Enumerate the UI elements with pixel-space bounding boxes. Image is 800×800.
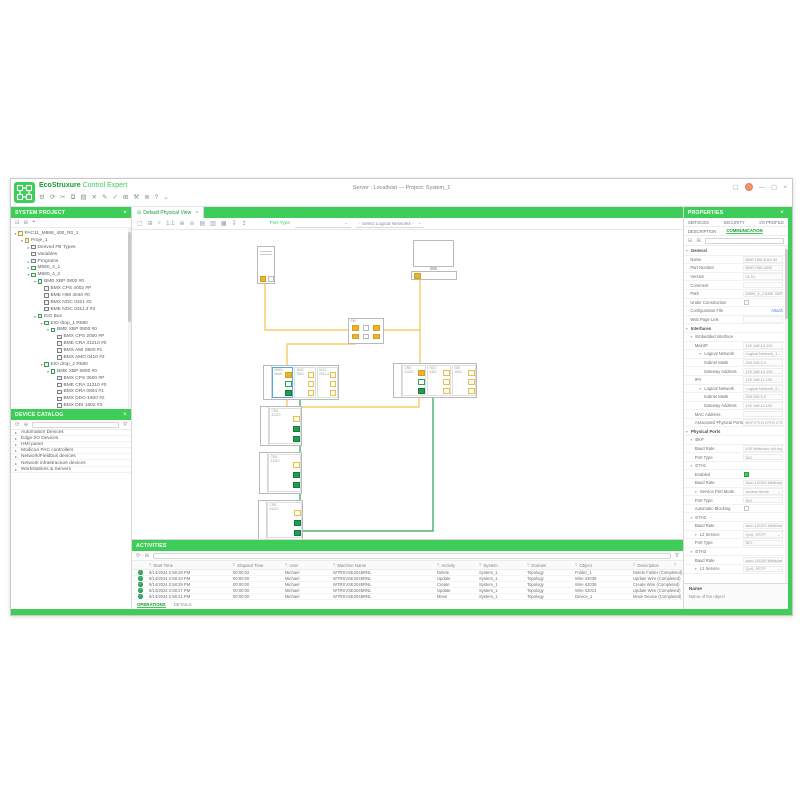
property-select[interactable]: Logical Network_1⌄ [743,351,783,358]
property-value[interactable]: 100 Mbits/sec full duplex [743,445,783,452]
property-label: Part Number [684,265,743,270]
checkbox-unchecked[interactable] [744,506,749,511]
drop-device[interactable]: CRA 31210 [260,406,302,446]
tower-device[interactable] [257,246,275,284]
property-value[interactable]: BME H58 4040 #0 [743,256,783,263]
property-value[interactable]: NIO [743,540,783,547]
port-yo[interactable] [293,462,300,468]
property-label: Path [684,291,743,296]
property-row: Version01.01 [684,273,788,282]
snapshot-icon[interactable]: ▥ [210,220,216,227]
port-yo[interactable] [308,381,315,387]
column-header-object[interactable]: ∇Object [572,563,630,568]
rack-module[interactable]: DDI 1602 [452,365,476,396]
port-yo[interactable] [468,370,475,376]
port-gw[interactable] [418,379,425,385]
device-label: SW [351,320,356,324]
export-wires-icon[interactable]: ↥ [242,220,247,227]
rack-module[interactable]: M580 MAIN [272,367,293,398]
property-label: ▾ETH1 [684,463,783,468]
port-g[interactable] [294,520,301,526]
column-header-start-time[interactable]: ∇Start Time [146,563,230,568]
properties-close-icon[interactable]: × [780,210,784,216]
deploy-icon[interactable]: ⊕ [144,193,149,202]
property-value[interactable]: SIO [743,497,783,504]
row-cell: 00:00:00 [230,582,282,587]
row-status-cell: ✓ [132,582,146,587]
property-value[interactable]: 255.255.0.0 [743,394,783,401]
property-value[interactable] [743,411,783,418]
props-search-input[interactable] [705,238,784,244]
property-value[interactable]: 192.168.10.100 [743,368,783,375]
wire[interactable] [298,393,433,531]
tree-item-label: BMX NOC 0321 #2 [51,300,92,305]
expand-all-icon[interactable]: ⊞ [24,220,29,226]
property-value[interactable]: SIO [743,454,783,461]
property-label: Name [684,257,743,262]
port-w[interactable] [268,276,275,282]
filter-funnel-icon[interactable]: ∇ [575,563,577,567]
tree-item[interactable]: BME CRA 31210 #0 [11,340,131,347]
properties-panel: PROPERTIES × SERVICESSECURITYI/O PROFILE… [684,207,788,609]
filter-funnel-icon[interactable]: ∇ [149,563,151,567]
cut-icon[interactable]: ✂ [60,193,65,202]
tree-item-label: BMX DDI 1602 #3 [64,403,103,408]
row-cell: 8/14/2024 2:58:21 PM [146,594,230,599]
property-value[interactable]: Auto 10/100 Mbits/sec [743,480,783,487]
filter-funnel-icon[interactable]: ∇ [285,563,287,567]
tree-item[interactable]: BME H58 4040 #0 [11,292,131,299]
port-g[interactable] [294,530,301,536]
property-value[interactable]: BME-H58-4040 [743,265,783,272]
tree-scrollbar[interactable] [128,228,131,409]
copy-icon[interactable]: ⧉ [71,193,76,202]
port-yo[interactable] [330,381,337,387]
tree-item-label: Derived FB Types [38,245,76,250]
chevron-down-icon: ⌄ [778,386,781,391]
import-wires-icon[interactable]: ↧ [232,220,237,227]
status-bar [11,609,792,615]
property-value[interactable]: 255.255.0.0 [743,359,783,366]
property-label: ▾Logical Network [684,386,743,391]
catalog-refresh-icon[interactable]: ⟳ [15,422,20,428]
activities-filter-icon[interactable]: ∇ [675,553,679,559]
maximize-icon[interactable]: ▢ [771,183,777,191]
export-icon[interactable]: ▤ [199,220,205,227]
tree-item[interactable]: ▾M580_4_2 [11,271,131,278]
props-expand-all-icon[interactable]: ⊞ [696,238,701,244]
paste-icon[interactable]: ▤ [80,193,86,202]
row-cell: System_1 [476,570,524,575]
tree-item[interactable]: BME CRA 31210 #0 [11,382,131,389]
row-cell: System_1 [476,582,524,587]
module-icon [57,397,62,402]
module-label: DDI 1602 [455,367,462,374]
property-row: Gateway Address192.168.10.100 [684,367,788,376]
row-cell: 00:00:02 [230,570,282,575]
minimize-icon[interactable]: — [759,184,766,191]
row-cell: Folder_1 [572,570,630,575]
catalog-item-label: Automation Devices [21,430,64,435]
filter-funnel-icon[interactable]: ∇ [479,563,481,567]
property-label: Port Type [684,498,743,503]
chevron-down-icon: ⌄ [344,220,348,226]
port-gw[interactable] [285,381,292,387]
tree-item[interactable]: BMX CPS 2000 #P [11,333,131,340]
row-cell: Michael [282,582,330,587]
tree-item[interactable]: BMX AMI 0800 #1 [11,347,131,354]
tree-item-label: BMX AMI 0800 #1 [64,348,103,353]
switch-device[interactable]: SW [348,318,384,344]
port-g[interactable] [293,482,300,488]
zoom-in-icon[interactable]: ⊕ [179,220,184,227]
activities-panel: ACTIVITIES ⟳ ⊞ ∇ ∇Start Time∇Elapsed Tim… [132,539,683,609]
port-g[interactable] [285,390,292,396]
column-header-machine-name[interactable]: ∇Machine Name [330,563,434,568]
port-yo[interactable] [468,388,475,394]
filter-funnel-icon[interactable]: ∇ [633,563,635,567]
properties-toolbar: ⊟ ⊞ [684,236,788,246]
row-cell: 00:00:00 [230,576,282,581]
rack-module[interactable]: NOC 0321 [427,365,451,396]
property-select[interactable]: Logical Network_2⌄ [743,385,783,392]
prop-tab-i-o-profile[interactable]: I/O PROFILE [759,220,784,225]
row-cell: Topology [524,588,572,593]
activities-rows: ✓8/14/2024 2:58:29 PM00:00:02MichaelWTRS… [132,570,683,600]
settings-icon[interactable]: ⚙ [39,193,45,202]
tree-item[interactable]: BMX DDO 1600 #2 [11,395,131,402]
tree-item[interactable]: BMX CPS 4002 #P [11,285,131,292]
catalog-search-input[interactable] [32,422,119,428]
tree-item-label: EIO Bus [44,314,62,319]
tree-item-label: BME H58 4040 #0 [51,293,90,298]
property-row: Baud Rate100 Mbits/sec full duplex [684,445,788,454]
property-value[interactable]: Auto 10/100 Mbits/sec [743,523,783,530]
tree-item[interactable]: ▾BME XBP 0800 #0 [11,278,131,285]
port-w[interactable] [363,334,370,340]
row-cell: Device_1 [572,594,630,599]
monitor-stand [430,267,437,270]
validate-icon[interactable]: ✓ [112,193,117,202]
property-label: ▾Logical Network [684,351,743,356]
catalog-item-label: Modicon PAC controllers [21,448,73,453]
property-value[interactable]: 01.01 [743,273,783,280]
tree-item-label: BME CRA 31210 #0 [64,341,107,346]
property-row: Port TypeSIO [684,496,788,505]
tree-item[interactable]: ▸Programs [11,258,131,265]
property-select[interactable]: QoS, RSTP⌄ [743,566,783,573]
station-icon [44,321,49,326]
port-yo[interactable] [468,379,475,385]
success-check-icon: ✓ [138,594,143,599]
property-select[interactable]: Access Mode⌄ [743,488,783,495]
prop-tab-services[interactable]: SERVICES [688,220,709,225]
drop-device[interactable]: CRA 31210 [258,500,303,539]
catalog-item[interactable]: ▸Workstations & Servers [11,467,131,473]
tree-item-label: Variables [38,252,58,257]
zoom-tool-icon[interactable]: ⌕ [158,220,161,227]
prop-tab-communication[interactable]: COMMUNICATION [726,228,762,234]
tree-item[interactable]: Variables [11,251,131,258]
module-label: CRA 31210 [270,504,279,511]
property-label: ▾L2 Service [684,532,743,537]
property-row: Part NumberBME-H58-4040 [684,264,788,273]
port-y[interactable] [373,325,380,331]
port-type-label: Port Type [270,221,290,226]
row-status-cell: ✓ [132,576,146,581]
drop-device[interactable]: CRA 31210 [259,452,302,494]
user-avatar[interactable] [745,183,753,191]
port-yo[interactable] [330,390,337,396]
row-cell: Michael [282,570,330,575]
row-status-cell: ✓ [132,588,146,593]
row-cell: Create [434,582,476,587]
properties-scrollbar[interactable] [785,246,788,583]
activities-search-input[interactable] [153,553,671,559]
port-yo[interactable] [308,372,315,378]
tree-item[interactable]: BMX CPS 3500 #P [11,375,131,382]
rack-device[interactable]: CRA 31210NOC 0321DDI 1602 [393,363,477,398]
property-row: Under Construction [684,299,788,308]
rack-device[interactable]: M580 MAINNOC 0321NOC 0311-4 [263,365,339,400]
topology-canvas[interactable]: SWM580 MAINNOC 0321NOC 0311-4CRA 31210NO… [132,230,683,539]
filter-funnel-icon[interactable]: ∇ [674,563,676,567]
port-y[interactable] [285,372,292,378]
prop-tab-security[interactable]: SECURITY [724,220,745,225]
tree-item-label: EIO drop_2 R580 [51,362,88,367]
column-header-user[interactable]: ∇User [282,563,330,568]
property-row: Subnet Mask255.255.0.0 [684,359,788,368]
tree-item[interactable]: BMX AMO 0410 #2 [11,354,131,361]
column-header-system[interactable]: ∇System [476,563,524,568]
column-header-domain[interactable]: ∇Domain [524,563,572,568]
locate-icon[interactable]: ⌖ [32,219,35,226]
tree-item[interactable]: ▾EIO drop_2 R580 [11,361,131,368]
rack-module[interactable]: CRA 31210 [269,408,301,444]
tree-item[interactable]: ▾BME XBP 0800 #0 [11,368,131,375]
tree-item[interactable]: BME NOC 0311.4 #3 [11,306,131,313]
layout-icon[interactable]: ▢ [732,183,738,191]
property-value[interactable]: M580_4_2.BME XBP 0800 [743,291,783,298]
close-icon[interactable]: × [783,184,787,191]
property-row: ▾L2 ServiceQoS, RSTP⌄ [684,565,788,574]
column-header-elapsed-time[interactable]: ∇Elapsed Time [230,563,282,568]
system-project-header: SYSTEM PROJECT × [11,207,131,218]
property-row: Subnet Mask255.255.0.0 [684,393,788,402]
checkbox-checked[interactable] [744,472,749,477]
row-cell: Topology [524,570,572,575]
module-label: NOC 0311-4 [319,369,329,376]
row-cell: Wire 42038 [572,582,630,587]
logical-network-select[interactable]: - Select Logical Networks -⌄ [356,220,424,228]
port-g[interactable] [418,388,425,394]
port-y[interactable] [418,370,425,376]
filter-funnel-icon[interactable]: ∇ [333,563,335,567]
module-icon [57,390,62,395]
property-row: Configuration FileAttach [684,307,788,316]
tab-default-physical-view[interactable]: ⊞ Default Physical View × [132,207,204,218]
tree-item-label: BME NOC 0311.4 #3 [51,307,96,312]
tree-item-label: PAC11_M868_400_R0_1 [25,231,79,236]
rack-module[interactable]: CRA 31210 [267,502,302,538]
chevron-down-icon: ⌄ [418,220,422,226]
tree-item-label: BME XBP 0800 #0 [57,327,97,332]
station-icon [31,266,36,271]
column-header-extra: ∇ [671,563,683,567]
port-yo[interactable] [308,390,315,396]
zoom-out-icon[interactable]: ⊖ [189,220,194,227]
tree-item[interactable]: ▾BME XBP 0800 #0 [11,326,131,333]
system-project-close-icon[interactable]: × [123,210,127,216]
catalog-item-label: Network infrastructure devices [21,461,86,466]
module-icon [44,293,49,298]
port-y[interactable] [414,273,421,279]
more-icon[interactable]: ⌄ [163,193,168,202]
column-header-activity[interactable]: ∇Activity [434,563,476,568]
port-g[interactable] [293,436,300,442]
property-row: NameBME H58 4040 #0 [684,256,788,265]
port-yo[interactable] [443,370,450,376]
attach-link[interactable]: Attach [743,308,783,313]
physical-view-icon: ⊞ [137,210,141,216]
property-label: Subnet Mask [684,360,743,365]
property-label: ▾ETH2 [684,515,783,520]
tab-close-icon[interactable]: × [195,210,198,216]
row-cell: 00:00:00 [230,588,282,593]
port-y[interactable] [373,334,380,340]
property-value[interactable]: 192.168.11.100 [743,376,783,383]
port-yo[interactable] [294,510,301,516]
prop-tab-description[interactable]: DESCRIPTION [688,229,717,234]
port-g[interactable] [293,472,300,478]
port-y[interactable] [260,276,267,282]
row-cell: Wire 42039 [572,576,630,581]
port-type-select[interactable]: ⌄ [295,220,351,228]
property-value[interactable] [743,282,783,289]
property-row: ▾BKP [684,436,788,445]
property-value[interactable]: 192.168.10.100 [743,342,783,349]
tree-item[interactable]: BMX NOC 0321 #2 [11,299,131,306]
checkbox-unchecked[interactable] [744,300,749,305]
tree-item-label: BMX DDO 1600 #2 [64,396,105,401]
fit-view-icon[interactable]: ⊞ [148,220,153,227]
tree-item[interactable]: ▸Derived FB Types [11,244,131,251]
monitor-device[interactable] [411,238,457,282]
property-row: Port TypeSIO [684,453,788,462]
activities-refresh-icon[interactable]: ⟳ [136,553,141,559]
property-value[interactable]: BKP ETH1 ETH2 ETH3 [743,419,783,426]
device-catalog-close-icon[interactable]: × [123,412,127,418]
module-icon [31,245,36,250]
property-label: Version [684,274,743,279]
property-row: ▾Embedded Interface [684,333,788,342]
property-row: ▾Interfaces [684,324,788,333]
port-yo[interactable] [443,388,450,394]
property-value[interactable]: 192.168.11.100 [743,402,783,409]
port-yo[interactable] [443,379,450,385]
rack-module[interactable]: NOC 0311-4 [317,367,338,398]
module-icon [57,335,62,340]
catalog-item-label: HMI panel [21,442,43,447]
rack-module[interactable]: NOC 0321 [294,367,315,398]
zoom-100-icon[interactable]: 1:1 [166,221,174,227]
activities-tab-operations[interactable]: OPERATIONS [137,602,166,608]
port-g[interactable] [293,426,300,432]
port-w[interactable] [363,325,370,331]
filter-funnel-icon[interactable]: ∇ [437,563,439,567]
row-cell: Topology [524,582,572,587]
properties-header: PROPERTIES × [684,207,788,218]
filter-funnel-icon[interactable]: ∇ [527,563,529,567]
rack-module[interactable]: CRA 31210 [268,454,301,492]
property-select[interactable]: QoS, RSTP⌄ [743,531,783,538]
tree-item-label: EIO drop_1 R580 [51,321,88,326]
activities-tab-details[interactable]: DETAILS [174,602,192,607]
property-label: Baud Rate [684,480,743,485]
property-value[interactable]: Auto 10/100 Mbits/sec [743,557,783,564]
select-tool-icon[interactable]: ▢ [137,220,143,227]
grid-icon[interactable]: ⊞ [123,193,128,202]
tree-item-label: BMX CPS 2000 #P [64,334,105,339]
tree-item-label: BME XBP 0800 #0 [44,279,84,284]
catalog-filter-icon[interactable]: ∇ [123,422,127,428]
module-icon [57,348,62,353]
property-value[interactable] [743,316,783,323]
props-collapse-all-icon[interactable]: ⊟ [688,238,693,244]
row-cell: Wire 42014 [572,588,630,593]
wire[interactable] [265,284,348,330]
main-toolbar: ⚙⟳✂⧉▤✕✎✓⊞⚒⊕?⌄ [39,193,169,202]
catalog-add-icon[interactable]: ⊕ [24,422,29,428]
port-y[interactable] [352,334,359,340]
sync-icon[interactable]: ⟳ [50,193,55,202]
tree-item[interactable]: ▸M580_4_1 [11,264,131,271]
property-row: PathM580_4_2.BME XBP 0800 [684,290,788,299]
help-icon[interactable]: ? [155,193,159,202]
rack-module[interactable]: CRA 31210 [402,365,426,396]
success-check-icon: ✓ [138,588,143,593]
activities-export-icon[interactable]: ⊞ [145,553,150,559]
column-header-description[interactable]: ∇Description [630,563,671,568]
property-row: ▾Logical NetworkLogical Network_2⌄ [684,385,788,394]
row-cell: Create Wire (Completed) [630,582,683,587]
property-help-box: Name Name of the object [684,583,788,609]
tree-item[interactable]: ▾EIO drop_1 R580 [11,320,131,327]
tree-item[interactable]: ▾PAC11_M868_400_R0_1 [11,230,131,237]
port-yo[interactable] [330,372,337,378]
collapse-all-icon[interactable]: ⊟ [15,220,20,226]
tree-item[interactable]: ▾EIO Bus [11,313,131,320]
module-icon [57,355,62,360]
collapsed-panel-strip[interactable] [788,207,792,609]
port-yo[interactable] [293,416,300,422]
tree-item[interactable]: ▾Proje_1 [11,237,131,244]
property-label: Subnet Mask [684,394,743,399]
module-label: CRA 31210 [271,456,280,463]
tree-item[interactable]: BMX DDI 1602 #3 [11,402,131,409]
delete-icon[interactable]: ✕ [92,193,97,202]
port-y[interactable] [352,325,359,331]
tools-icon[interactable]: ⚒ [133,193,139,202]
tree-item[interactable]: BMX DRA 0804 #1 [11,388,131,395]
tree-item-label: BMX AMO 0410 #2 [64,355,105,360]
property-row: Automatic Blocking [684,505,788,514]
filter-funnel-icon[interactable]: ∇ [233,563,235,567]
device-catalog-toolbar: ⟳ ⊕ ∇ [11,420,131,430]
layers-icon[interactable]: ▦ [221,220,227,227]
app-window: EcoStruxure Control Expert ⚙⟳✂⧉▤✕✎✓⊞⚒⊕?⌄… [10,178,793,616]
edit-icon[interactable]: ✎ [102,193,107,202]
